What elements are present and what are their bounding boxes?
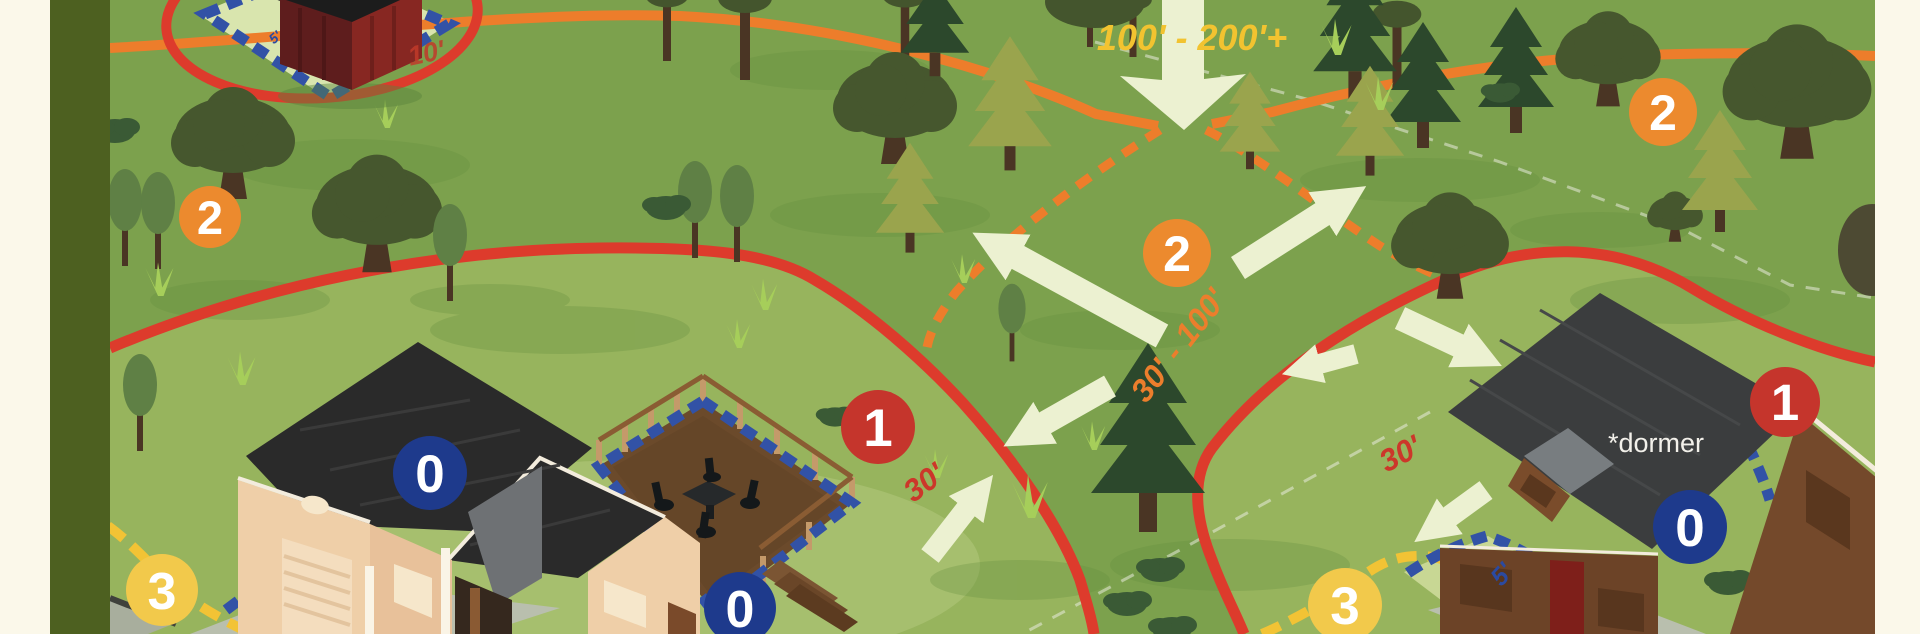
porch-inner-post [470, 588, 480, 634]
svg-text:2: 2 [197, 191, 223, 244]
map-art: 100' - 200'+ 30' - 100' 30' 30' 10' 5' 5… [91, 0, 1906, 634]
zone-1-badge-right: 1 [1750, 367, 1820, 437]
svg-text:0: 0 [415, 445, 444, 504]
illustration-canvas: 100' - 200'+ 30' - 100' 30' 30' 10' 5' 5… [0, 0, 1920, 634]
window [1598, 588, 1644, 632]
svg-text:0: 0 [726, 581, 755, 634]
zone2-range-label: 100' - 200'+ [1097, 17, 1287, 58]
arrow-west-short-icon [1312, 354, 1356, 366]
front-door [1550, 560, 1584, 634]
svg-text:0: 0 [1675, 499, 1704, 558]
svg-text:1: 1 [863, 399, 892, 458]
zone-0-badge-left-house: 0 [393, 436, 467, 510]
shed [266, 0, 426, 109]
svg-text:2: 2 [1163, 226, 1191, 282]
svg-text:2: 2 [1649, 85, 1677, 141]
left-olive-bar [50, 0, 110, 634]
right-page-edge [1875, 0, 1920, 634]
svg-text:3: 3 [1330, 577, 1359, 634]
zone-2-badge-left: 2 [179, 186, 241, 248]
zone-2-badge-right: 2 [1629, 78, 1697, 146]
zone-0-badge-right-house: 0 [1653, 490, 1727, 564]
porch-post [365, 566, 374, 634]
dormer-note-label: *dormer [1608, 428, 1704, 458]
defensible-space-illustration: 100' - 200'+ 30' - 100' 30' 30' 10' 5' 5… [0, 0, 1920, 634]
porch-post [441, 548, 450, 634]
zone-1-badge-left: 1 [841, 390, 915, 464]
zone-3-badge-left: 3 [126, 554, 198, 626]
bush [1148, 616, 1197, 634]
svg-text:3: 3 [148, 563, 177, 621]
zone-2-badge-center: 2 [1143, 219, 1211, 287]
svg-text:1: 1 [1771, 374, 1799, 431]
